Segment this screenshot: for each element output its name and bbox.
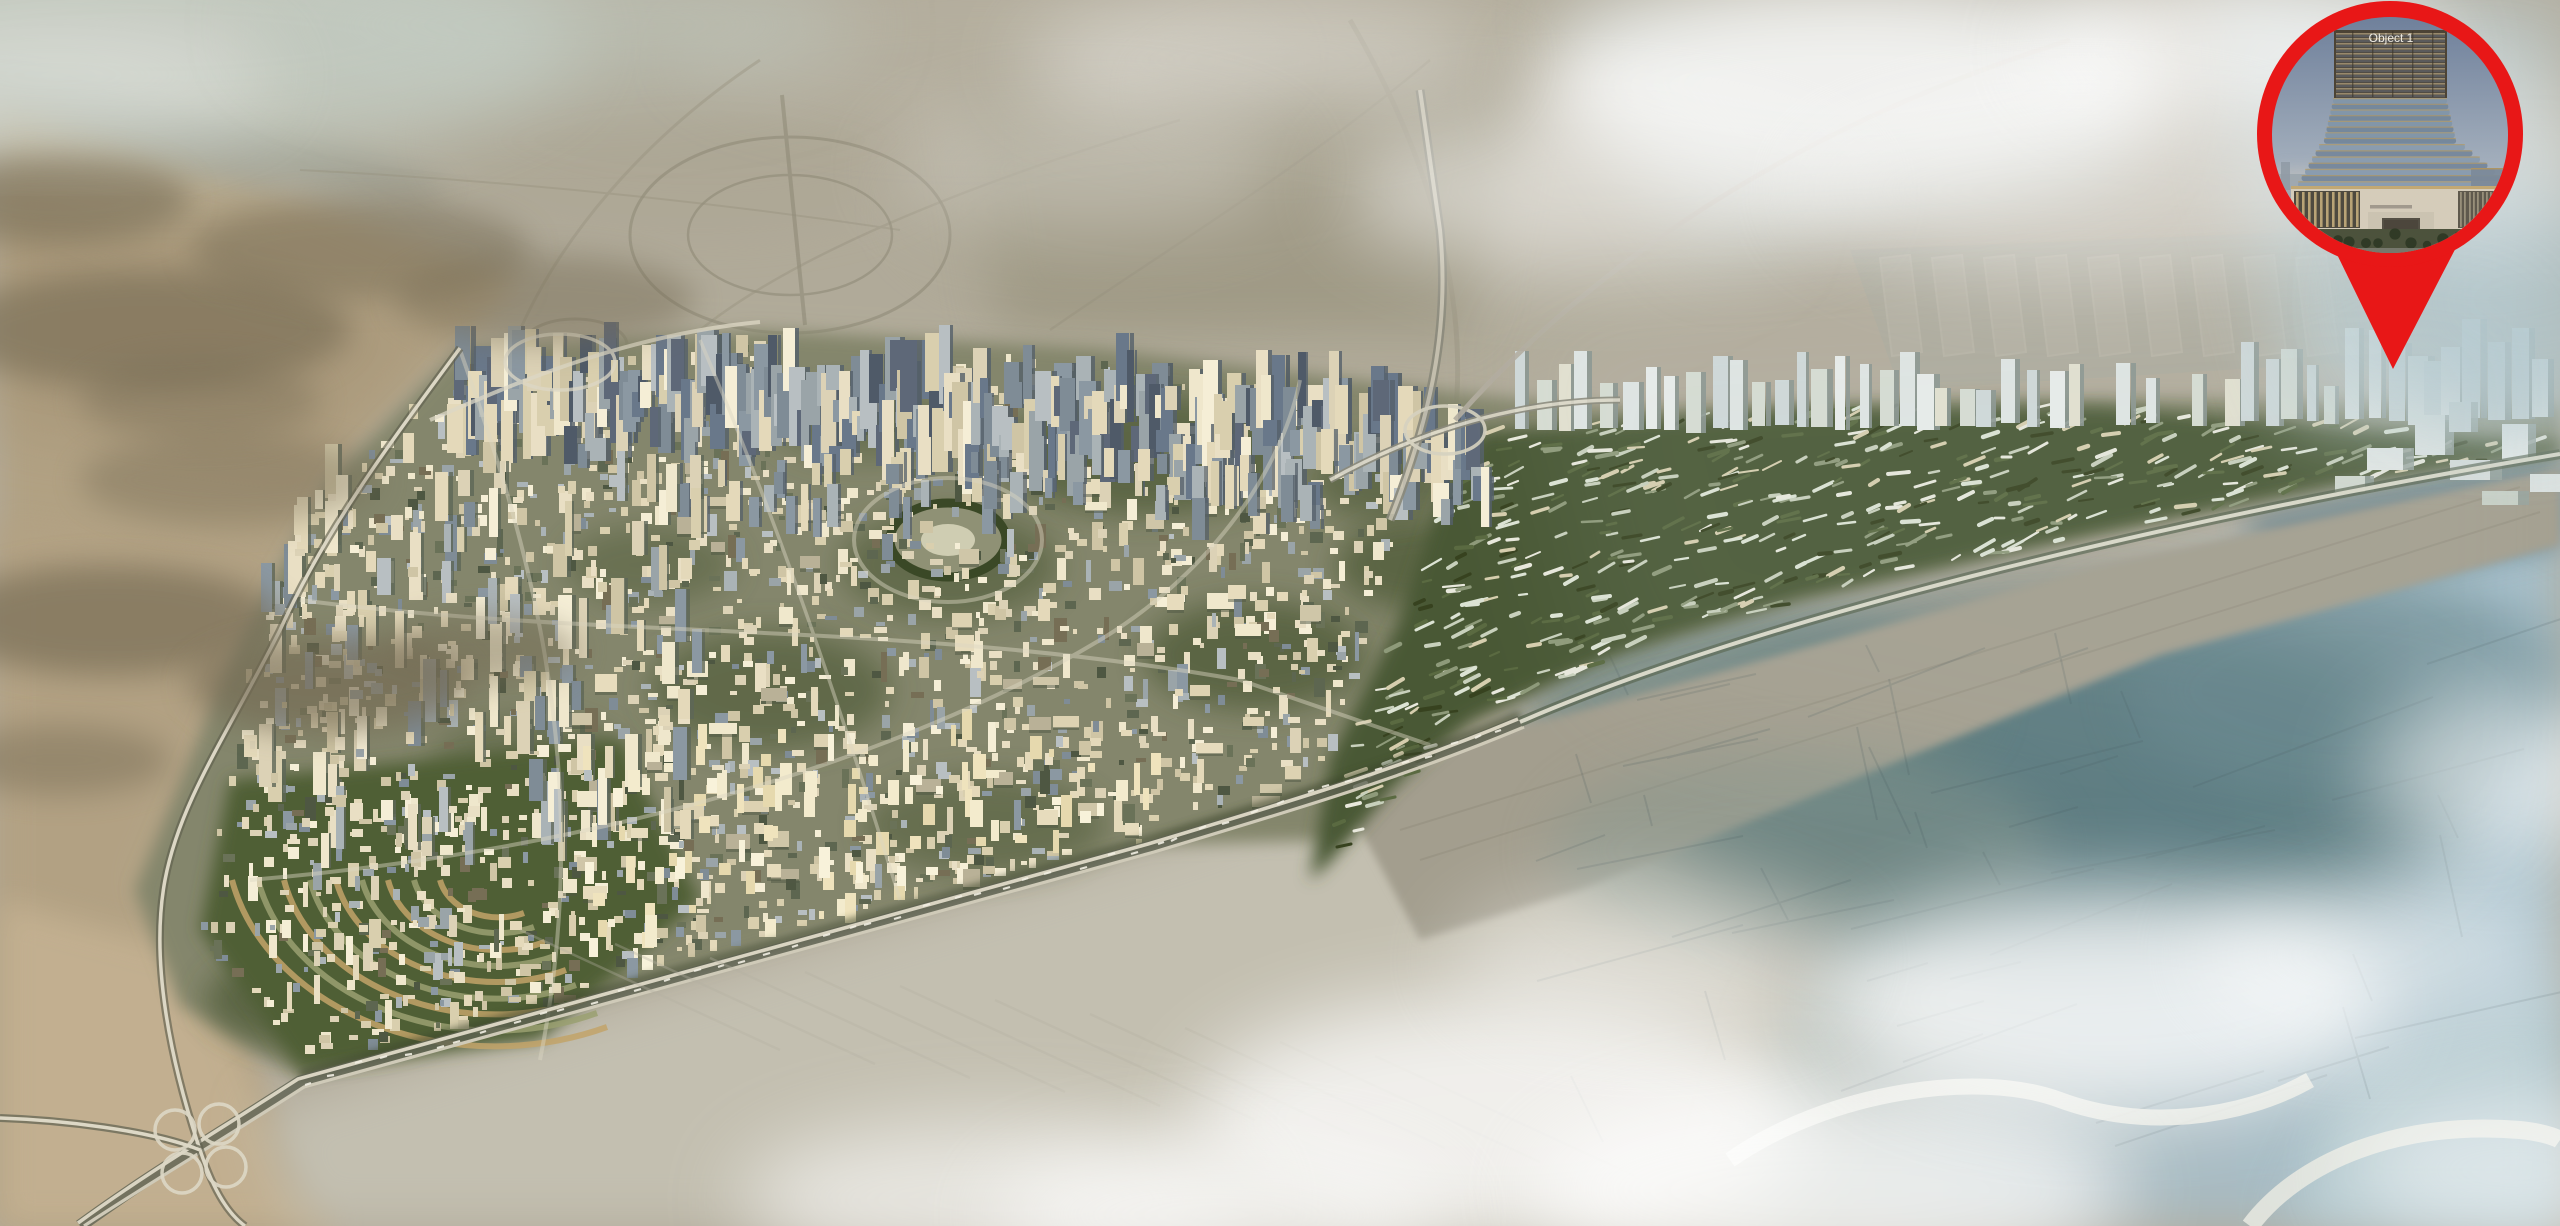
svg-text:Object 1: Object 1 xyxy=(2369,31,2414,45)
